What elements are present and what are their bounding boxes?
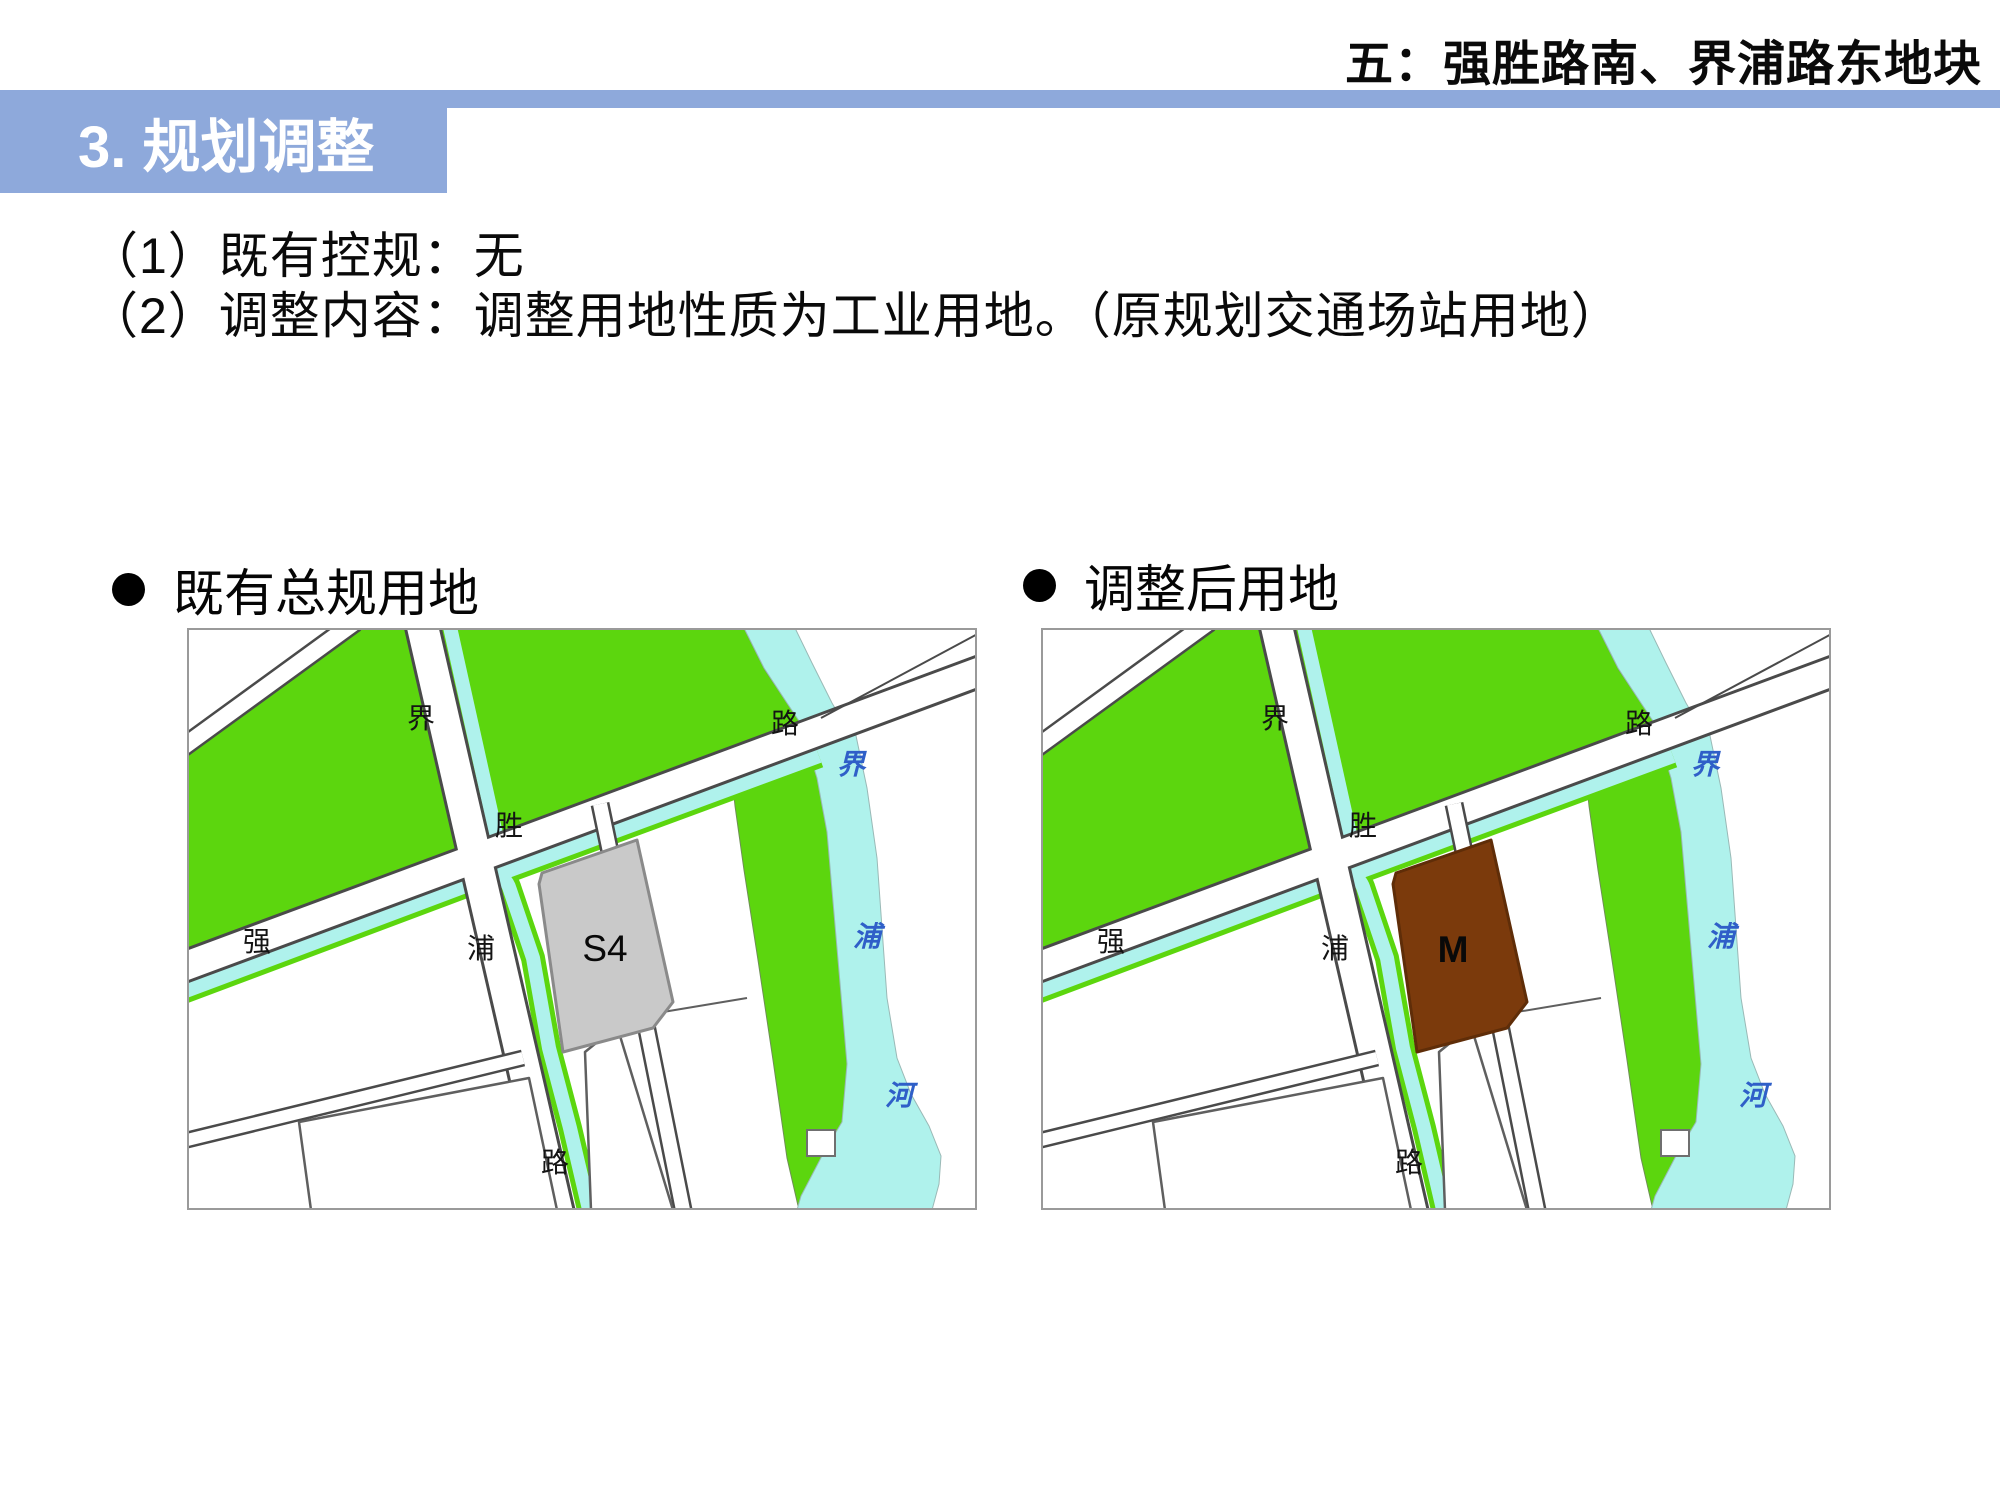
parcel-before-label: S4 — [582, 928, 627, 969]
page-title: 五：强胜路南、界浦路东地块 — [1345, 24, 1982, 94]
heading-before-label: 既有总规用地 — [173, 552, 479, 626]
heading-after-label: 调整后用地 — [1084, 548, 1339, 622]
map-before: S4 — [187, 628, 977, 1210]
section-banner-label: 3. 规划调整 — [78, 100, 375, 184]
bullet-icon — [1023, 569, 1056, 602]
heading-before: 既有总规用地 — [112, 552, 479, 626]
map-after: M — [1041, 628, 1831, 1210]
body-line-2: （2）调整内容：调整用地性质为工业用地。（原规划交通场站用地） — [88, 276, 1622, 348]
parcel-after-label: M — [1438, 929, 1469, 970]
bullet-icon — [112, 573, 145, 606]
heading-after: 调整后用地 — [1023, 548, 1339, 622]
section-banner: 3. 规划调整 — [0, 90, 447, 193]
slide: 五：强胜路南、界浦路东地块 3. 规划调整 （1）既有控规：无 （2）调整内容：… — [0, 0, 2000, 1500]
